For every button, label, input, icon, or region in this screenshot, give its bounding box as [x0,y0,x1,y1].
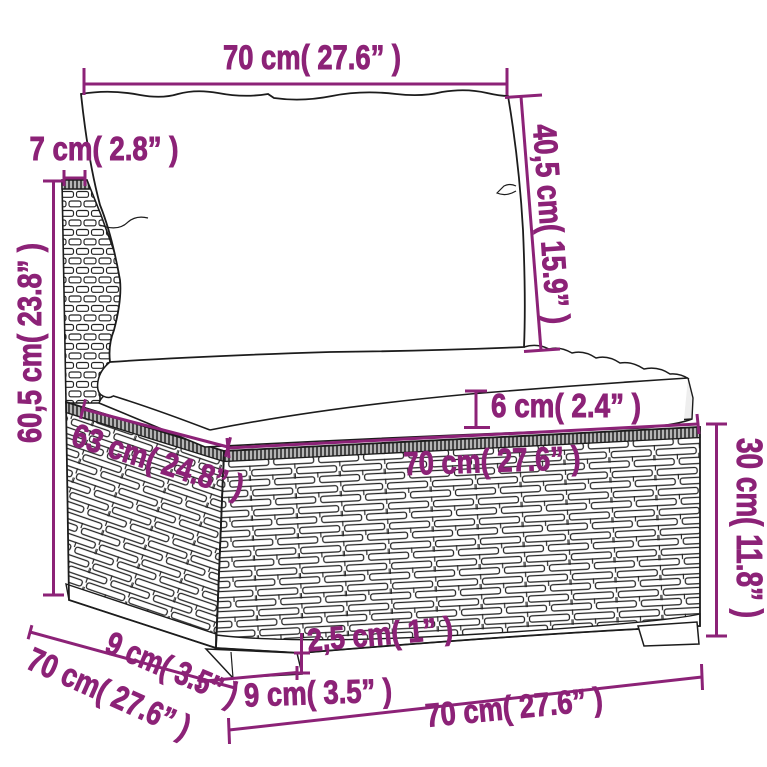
svg-text:6 cm( 2.4” ): 6 cm( 2.4” ) [491,387,641,424]
svg-text:7 cm( 2.8” ): 7 cm( 2.8” ) [30,130,179,167]
svg-text:60,5 cm( 23.8” ): 60,5 cm( 23.8” ) [11,243,48,443]
svg-text:9 cm( 3.5” ): 9 cm( 3.5” ) [243,671,392,713]
svg-text:30 cm( 11.8” ): 30 cm( 11.8” ) [729,438,767,618]
svg-text:70 cm( 27.6” ): 70 cm( 27.6” ) [223,39,401,77]
svg-text:70 cm( 27.6” ): 70 cm( 27.6” ) [403,439,581,482]
